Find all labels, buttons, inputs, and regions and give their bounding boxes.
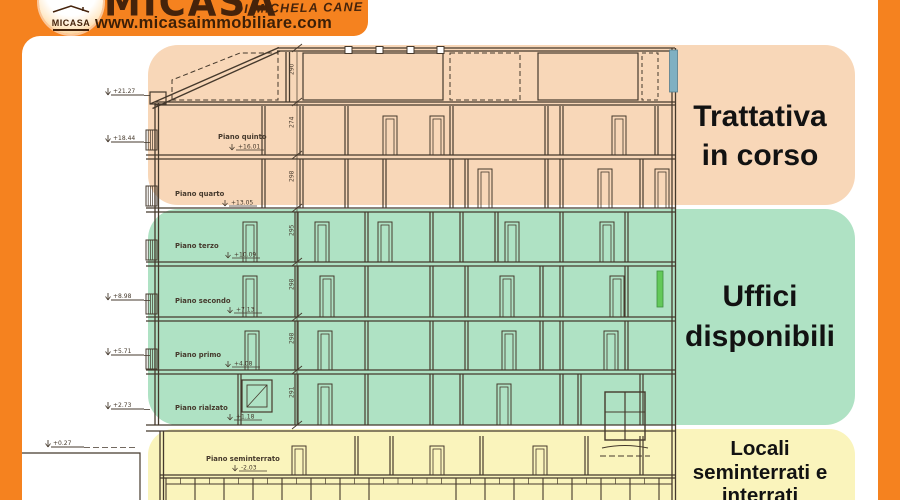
zone-label-line: interrati [663, 484, 857, 500]
zone-label-line: Uffici [663, 277, 857, 317]
frame-border-right [878, 0, 900, 500]
svg-text:Piano quinto: Piano quinto [218, 133, 267, 141]
zone-label-line: disponibili [663, 317, 857, 357]
svg-text:Piano rialzato: Piano rialzato [175, 404, 228, 412]
brand-logo-rule [53, 29, 89, 31]
svg-text:+13.05: +13.05 [231, 200, 253, 207]
svg-text:Piano terzo: Piano terzo [175, 242, 219, 250]
brand-logo-text: MICASA [39, 18, 103, 28]
svg-text:Piano quarto: Piano quarto [175, 190, 225, 198]
listing-image: 290274298295298298291Piano quinto+16.01P… [0, 0, 900, 500]
svg-text:290: 290 [289, 63, 296, 75]
zone-label-line: Trattativa [663, 97, 857, 136]
svg-text:+0.27: +0.27 [53, 440, 72, 447]
svg-text:-2.03: -2.03 [241, 465, 257, 472]
svg-text:+7.13: +7.13 [236, 307, 255, 314]
zone-label-trattativa: Trattativa in corso [663, 97, 857, 175]
svg-text:Piano primo: Piano primo [175, 351, 221, 359]
zone-label-line: Locali [663, 437, 857, 461]
svg-text:+8.98: +8.98 [113, 293, 132, 300]
svg-text:+18.44: +18.44 [113, 135, 135, 142]
svg-text:274: 274 [289, 116, 296, 128]
zone-label-uffici: Uffici disponibili [663, 277, 857, 357]
svg-text:+16.01: +16.01 [238, 144, 260, 151]
svg-text:298: 298 [289, 278, 296, 290]
svg-text:+2.73: +2.73 [113, 402, 132, 409]
svg-text:+21.27: +21.27 [113, 88, 135, 95]
zone-label-line: seminterrati e [663, 461, 857, 485]
svg-text:Piano secondo: Piano secondo [175, 297, 231, 305]
frame-border-left [0, 0, 22, 500]
building-section-drawing: 290274298295298298291Piano quinto+16.01P… [0, 0, 900, 500]
brand-logo-text-wrap: MICASA [39, 0, 103, 34]
zone-label-seminterrati: Locali seminterrati e interrati [663, 437, 857, 500]
svg-text:Piano seminterrato: Piano seminterrato [206, 455, 280, 463]
website-url: www.micasaimmobiliare.com [95, 14, 335, 33]
zone-label-line: in corso [663, 136, 857, 175]
svg-text:298: 298 [289, 332, 296, 344]
svg-text:+4.08: +4.08 [234, 361, 253, 368]
svg-text:291: 291 [289, 386, 296, 398]
svg-text:298: 298 [289, 170, 296, 182]
svg-text:+1.18: +1.18 [236, 414, 255, 421]
svg-text:+5.71: +5.71 [113, 348, 132, 355]
house-roof-icon [39, 5, 103, 13]
svg-text:+10.09: +10.09 [234, 252, 256, 259]
svg-text:295: 295 [289, 224, 296, 236]
